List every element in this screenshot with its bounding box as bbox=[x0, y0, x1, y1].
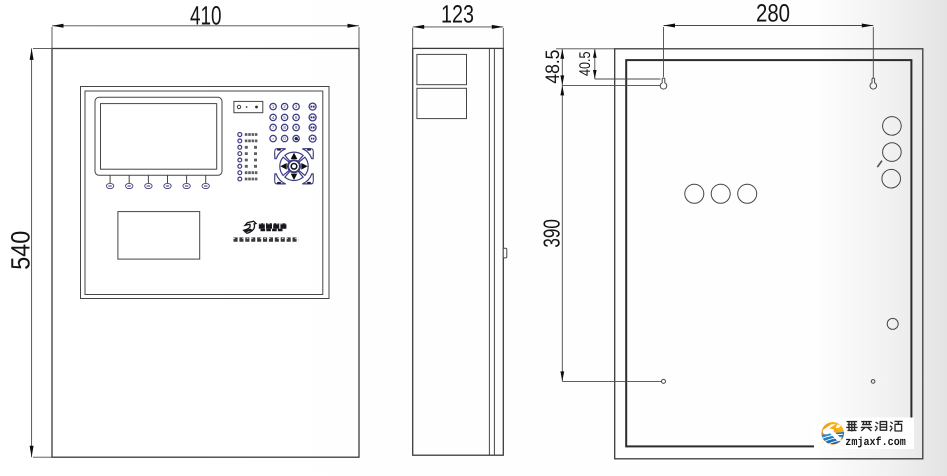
svg-text:40.5: 40.5 bbox=[577, 52, 594, 77]
svg-text:*: * bbox=[272, 137, 274, 142]
svg-text:48.5: 48.5 bbox=[542, 49, 564, 83]
svg-text:zmjaxf.com: zmjaxf.com bbox=[845, 436, 906, 449]
svg-text:540: 540 bbox=[5, 231, 35, 270]
svg-text:390: 390 bbox=[539, 219, 565, 248]
svg-text:123: 123 bbox=[441, 0, 474, 28]
svg-text:410: 410 bbox=[190, 1, 222, 31]
svg-text:280: 280 bbox=[756, 0, 790, 27]
